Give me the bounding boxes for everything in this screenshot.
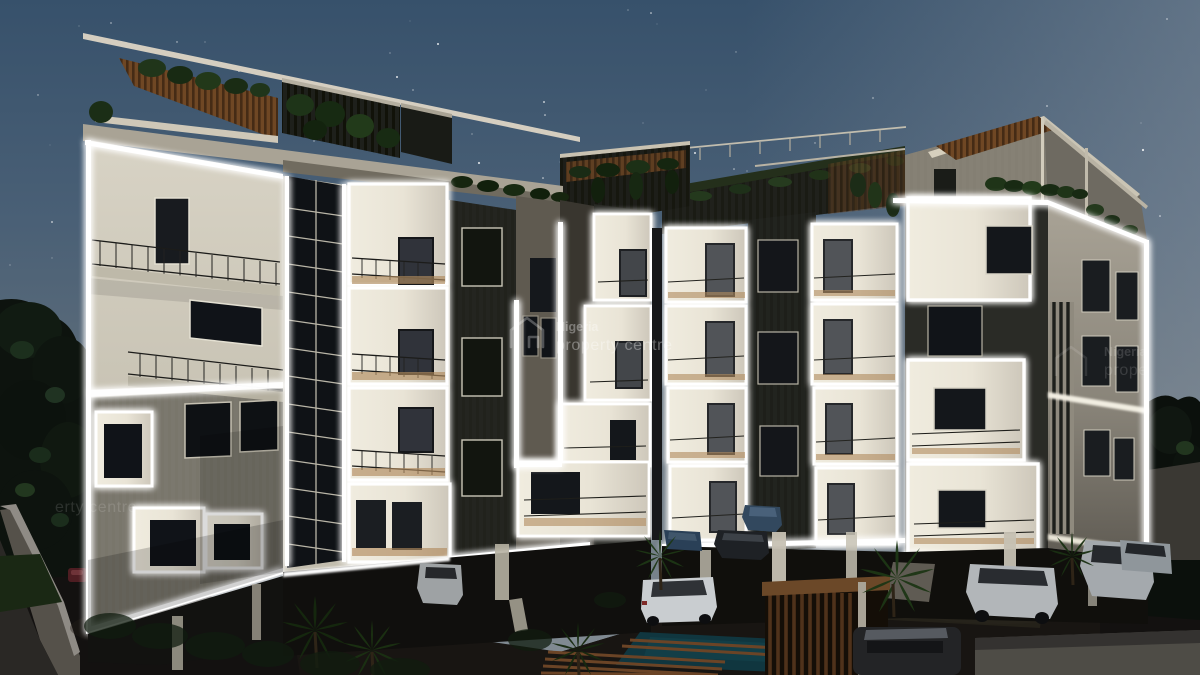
svg-text:erty centre: erty centre <box>55 499 137 516</box>
svg-text:Nigeria: Nigeria <box>556 320 599 334</box>
svg-text:property centre: property centre <box>556 337 673 354</box>
svg-text:prope: prope <box>1104 362 1148 379</box>
svg-text:Nigeria: Nigeria <box>1104 345 1147 359</box>
